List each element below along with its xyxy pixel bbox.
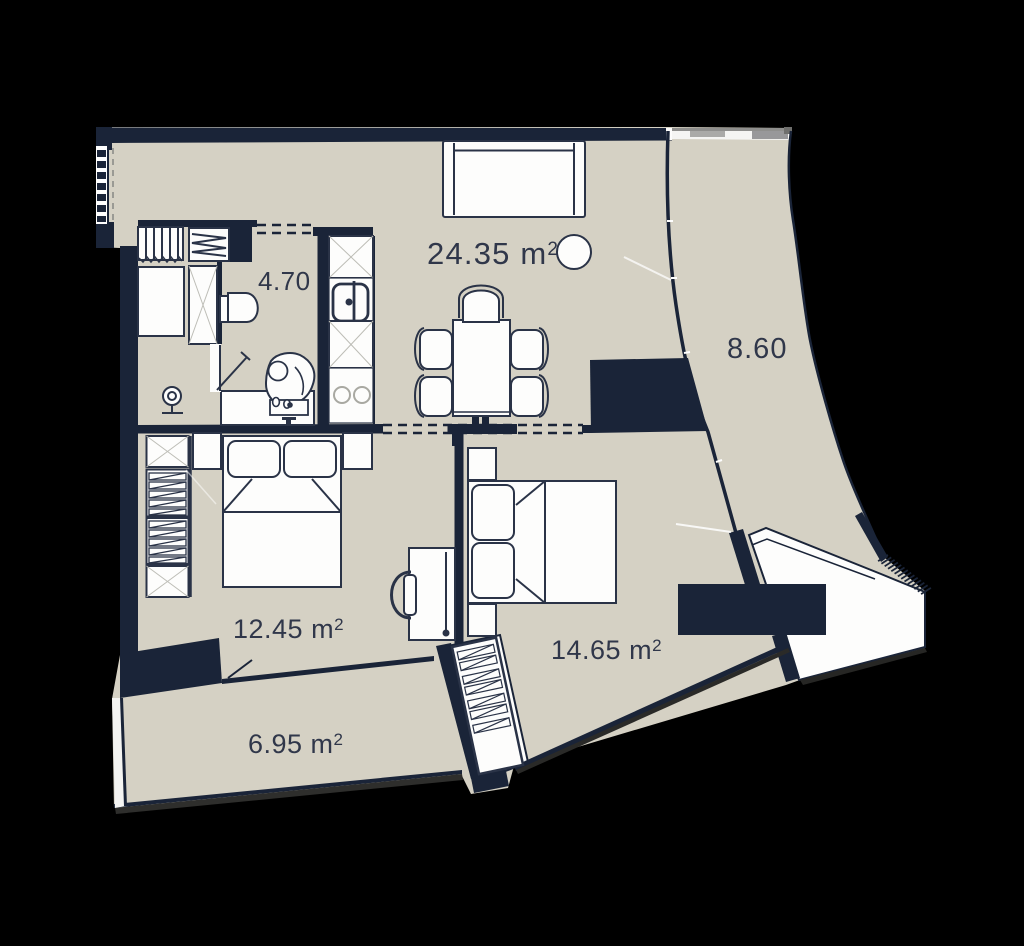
svg-text:12.45 m2: 12.45 m2 [233, 614, 344, 644]
svg-text:24.35 m2: 24.35 m2 [427, 236, 559, 271]
svg-text:6.95 m2: 6.95 m2 [248, 729, 344, 759]
svg-text:8.60: 8.60 [727, 333, 787, 365]
svg-text:14.65 m2: 14.65 m2 [551, 635, 662, 665]
svg-text:4.70: 4.70 [258, 266, 311, 296]
